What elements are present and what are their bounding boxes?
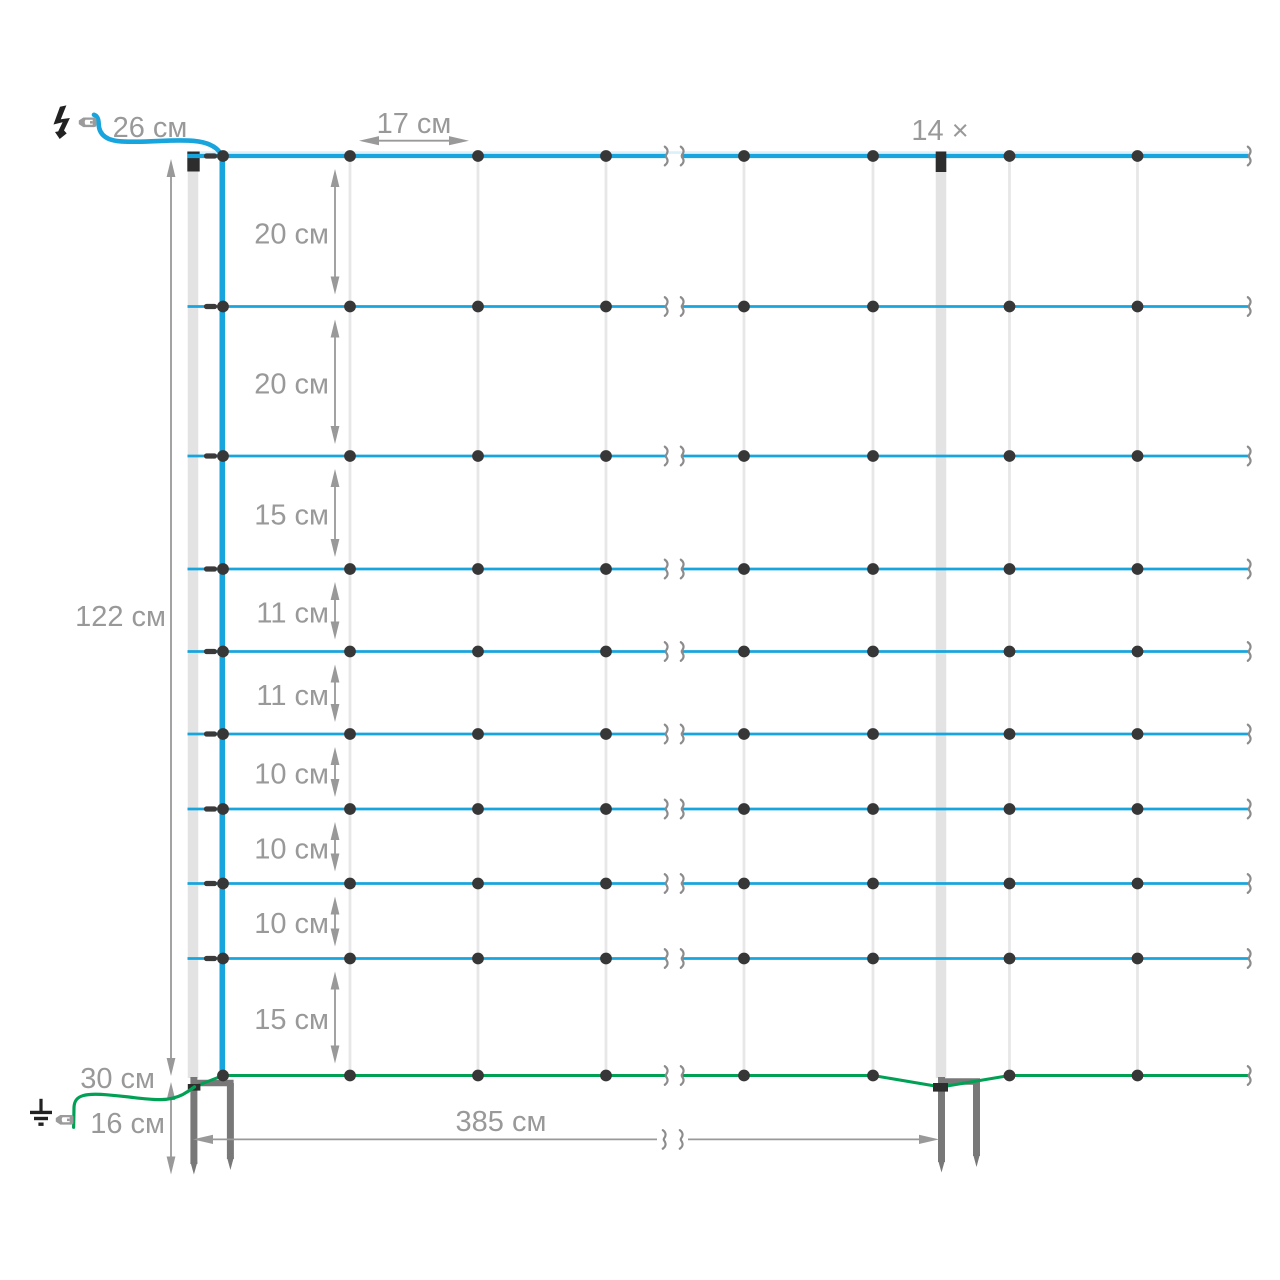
svg-text:20 см: 20 см	[254, 218, 329, 250]
svg-text:20 см: 20 см	[254, 368, 329, 400]
svg-text:10 см: 10 см	[254, 759, 329, 791]
svg-text:17 см: 17 см	[377, 108, 452, 140]
svg-text:122 см: 122 см	[75, 601, 166, 633]
svg-text:10 см: 10 см	[254, 908, 329, 940]
svg-text:10 см: 10 см	[254, 833, 329, 865]
svg-text:26 см: 26 см	[113, 112, 188, 144]
svg-text:16 см: 16 см	[90, 1108, 165, 1140]
svg-text:15 см: 15 см	[254, 500, 329, 532]
svg-text:11 см: 11 см	[256, 597, 329, 629]
svg-text:11 см: 11 см	[256, 680, 329, 712]
svg-text:30 см: 30 см	[80, 1063, 155, 1095]
svg-text:385 см: 385 см	[456, 1106, 547, 1138]
svg-text:15 см: 15 см	[254, 1004, 329, 1036]
svg-text:14 ×: 14 ×	[911, 115, 968, 147]
